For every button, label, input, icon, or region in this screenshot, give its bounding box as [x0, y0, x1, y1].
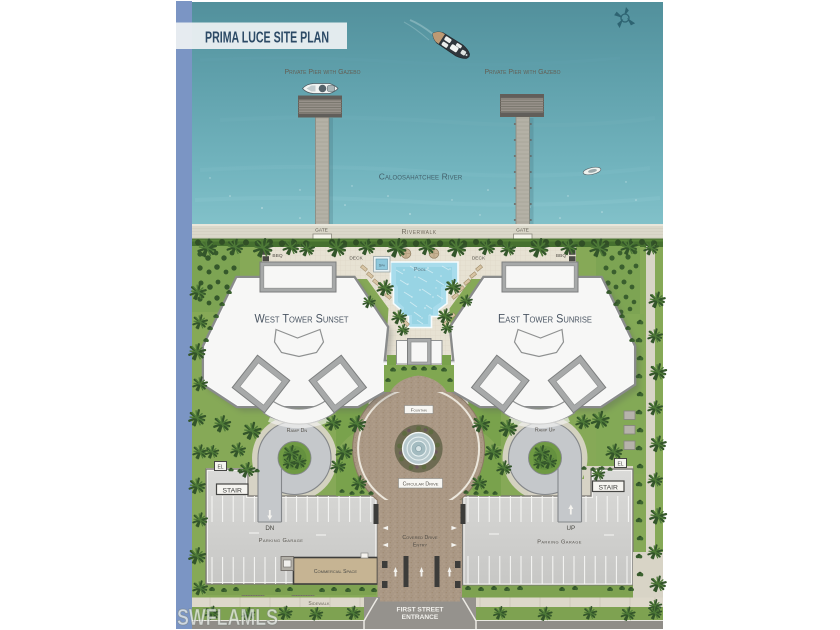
- svg-text:Private Pier with Gazebo: Private Pier with Gazebo: [485, 69, 561, 76]
- svg-text:STAIR: STAIR: [222, 488, 242, 495]
- svg-text:Commercial Space: Commercial Space: [314, 569, 357, 575]
- svg-text:GATE: GATE: [516, 228, 529, 234]
- svg-text:UP: UP: [566, 525, 575, 532]
- svg-text:Pool: Pool: [414, 267, 427, 273]
- svg-text:SWFLAMLS: SWFLAMLS: [177, 604, 278, 630]
- svg-text:Private Pier with Gazebo: Private Pier with Gazebo: [285, 69, 361, 76]
- svg-text:Ramp Up: Ramp Up: [535, 428, 556, 434]
- svg-text:DN: DN: [265, 525, 274, 532]
- svg-text:BBQ: BBQ: [556, 253, 566, 259]
- svg-text:Parking Garage: Parking Garage: [537, 540, 582, 546]
- svg-text:Parking Garage: Parking Garage: [259, 538, 304, 544]
- svg-text:Sidewalk: Sidewalk: [308, 601, 330, 607]
- svg-text:EL: EL: [217, 465, 223, 471]
- svg-text:West Tower Sunset: West Tower Sunset: [255, 314, 349, 326]
- svg-text:EL: EL: [617, 462, 623, 468]
- svg-text:DECK: DECK: [349, 256, 363, 262]
- svg-text:FIRST STREET: FIRST STREET: [397, 607, 444, 614]
- svg-text:Circular Drive: Circular Drive: [403, 482, 439, 488]
- svg-text:Caloosahatchee River: Caloosahatchee River: [379, 172, 463, 182]
- svg-text:East Tower Sunrise: East Tower Sunrise: [498, 314, 592, 326]
- svg-text:GATE: GATE: [315, 228, 328, 234]
- svg-text:DECK: DECK: [472, 256, 486, 262]
- svg-text:BBQ: BBQ: [272, 253, 282, 259]
- svg-text:STAIR: STAIR: [598, 485, 618, 492]
- svg-text:Entry: Entry: [413, 543, 428, 549]
- svg-text:PRIMA LUCE SITE PLAN: PRIMA LUCE SITE PLAN: [205, 30, 329, 47]
- svg-text:Riverwalk: Riverwalk: [401, 229, 436, 236]
- svg-text:Spa: Spa: [379, 262, 385, 267]
- svg-text:Fountain: Fountain: [411, 408, 427, 413]
- svg-text:ENTRANCE: ENTRANCE: [402, 614, 439, 621]
- svg-text:Ramp Dn: Ramp Dn: [287, 428, 308, 434]
- svg-text:Covered Drive: Covered Drive: [402, 535, 437, 541]
